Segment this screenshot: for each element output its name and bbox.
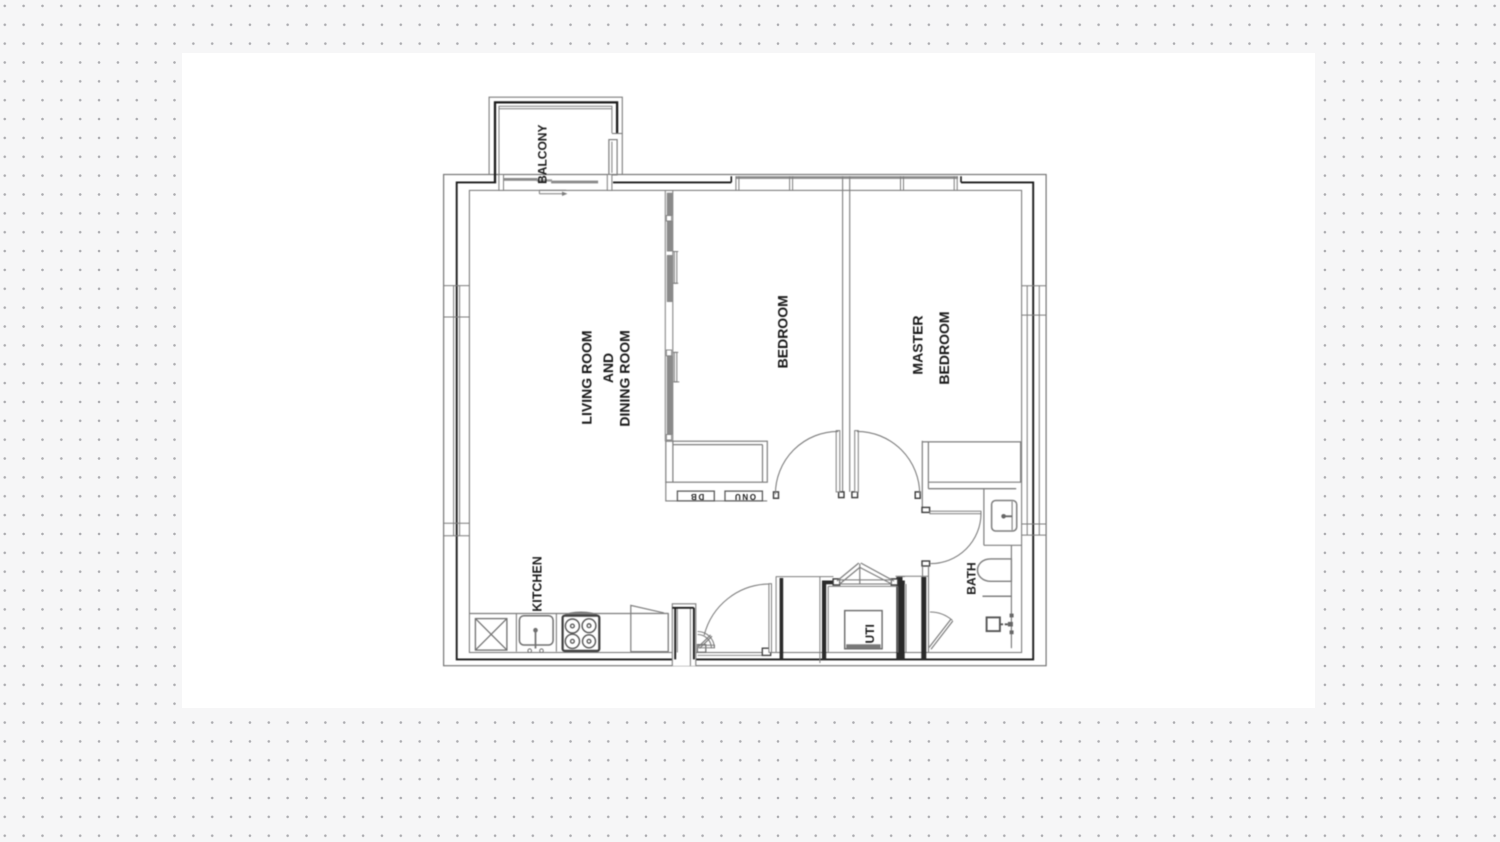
svg-text:KITCHEN: KITCHEN [531, 556, 545, 612]
svg-text:BALCONY: BALCONY [535, 125, 549, 184]
svg-text:DB: DB [689, 492, 704, 501]
svg-text:DINING ROOM: DINING ROOM [616, 330, 632, 426]
svg-text:AND: AND [600, 353, 616, 383]
svg-text:UTI: UTI [863, 624, 877, 643]
svg-text:MASTER: MASTER [910, 315, 926, 374]
svg-text:BATH: BATH [965, 562, 979, 594]
svg-text:ONU: ONU [733, 492, 756, 501]
svg-text:BEDROOM: BEDROOM [775, 295, 791, 368]
svg-text:BEDROOM: BEDROOM [936, 311, 952, 384]
svg-text:LIVING ROOM: LIVING ROOM [579, 330, 595, 424]
